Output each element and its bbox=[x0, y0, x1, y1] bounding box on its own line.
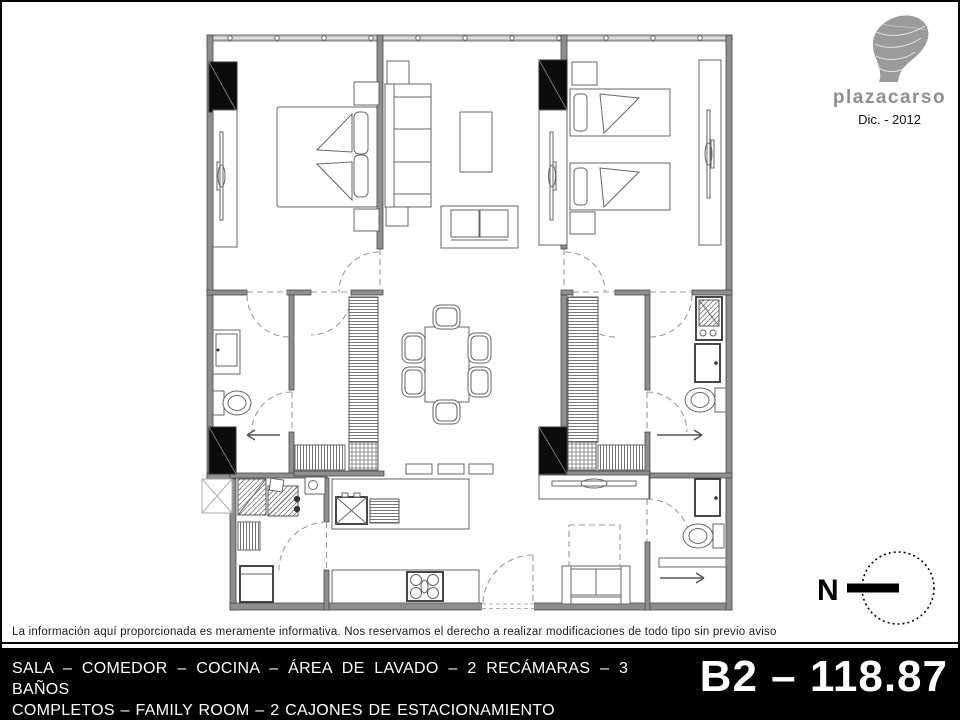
dining-table-icon bbox=[425, 327, 469, 402]
sink-icon bbox=[213, 330, 240, 374]
north-bar-icon bbox=[847, 584, 899, 593]
kitchen bbox=[305, 464, 493, 603]
refrigerator-icon bbox=[240, 566, 273, 602]
closet-1 bbox=[295, 297, 378, 470]
rug-icon bbox=[569, 525, 620, 570]
soumaya-building-icon bbox=[817, 12, 960, 84]
nightstand-icon bbox=[570, 212, 595, 234]
bathroom-2 bbox=[685, 297, 726, 412]
plan-date: Dic. - 2012 bbox=[817, 112, 960, 127]
coffee-table-icon bbox=[460, 112, 492, 172]
dining-chair-icon bbox=[433, 400, 460, 424]
plan-area: plazacarso Dic. - 2012 N La información … bbox=[2, 2, 958, 644]
unit-description: SALA – COMEDOR – COCINA – ÁREA DE LAVADO… bbox=[12, 658, 642, 720]
floor-plan-drawing bbox=[198, 22, 738, 616]
side-table-icon bbox=[386, 207, 408, 226]
drainboard-icon bbox=[370, 499, 399, 523]
boiler-icon bbox=[305, 477, 325, 494]
toilet-icon bbox=[213, 391, 224, 415]
unit-code: B2 – 118.87 bbox=[700, 652, 948, 702]
bar-stool-icon bbox=[438, 464, 464, 474]
bathroom-1 bbox=[213, 330, 251, 415]
wardrobe-icon bbox=[568, 297, 598, 442]
master-bedroom bbox=[213, 82, 379, 247]
bathroom-3 bbox=[659, 479, 726, 567]
brand-name: plazacarso bbox=[817, 87, 960, 109]
closet-2 bbox=[568, 297, 645, 470]
laundry-area bbox=[202, 478, 300, 602]
footer-band: SALA – COMEDOR – COCINA – ÁREA DE LAVADO… bbox=[2, 648, 958, 718]
kitchen-counter-icon bbox=[332, 570, 479, 603]
unit-description-line2: COMPLETOS – FAMILY ROOM – 2 CAJONES DE E… bbox=[12, 700, 642, 720]
toilet-icon bbox=[683, 524, 713, 548]
nightstand-icon bbox=[354, 209, 379, 231]
shelf-icon bbox=[659, 558, 726, 567]
floorplan-sheet: plazacarso Dic. - 2012 N La información … bbox=[0, 0, 960, 720]
disclaimer-text: La información aquí proporcionada es mer… bbox=[12, 626, 792, 638]
north-indicator: N bbox=[797, 537, 957, 642]
brand-logo: plazacarso Dic. - 2012 bbox=[817, 12, 960, 127]
toilet-icon bbox=[685, 388, 715, 412]
dining-chair-icon bbox=[402, 367, 425, 397]
nightstand-icon bbox=[354, 82, 379, 105]
dining-chair-icon bbox=[468, 333, 491, 363]
bar-stool-icon bbox=[469, 464, 493, 474]
family-room bbox=[539, 475, 649, 604]
side-table-icon bbox=[387, 61, 409, 84]
dining-area bbox=[402, 305, 491, 424]
bar-stool-icon bbox=[406, 464, 432, 474]
dining-chair-icon bbox=[468, 367, 491, 397]
door-swings bbox=[247, 249, 692, 603]
bedroom-2 bbox=[570, 60, 721, 245]
north-label: N bbox=[817, 574, 839, 607]
wardrobe-icon bbox=[349, 297, 378, 442]
unit-description-line1: SALA – COMEDOR – COCINA – ÁREA DE LAVADO… bbox=[12, 658, 642, 700]
dining-chair-icon bbox=[402, 333, 425, 363]
nightstand-icon bbox=[572, 62, 597, 85]
dining-chair-icon bbox=[433, 305, 460, 329]
